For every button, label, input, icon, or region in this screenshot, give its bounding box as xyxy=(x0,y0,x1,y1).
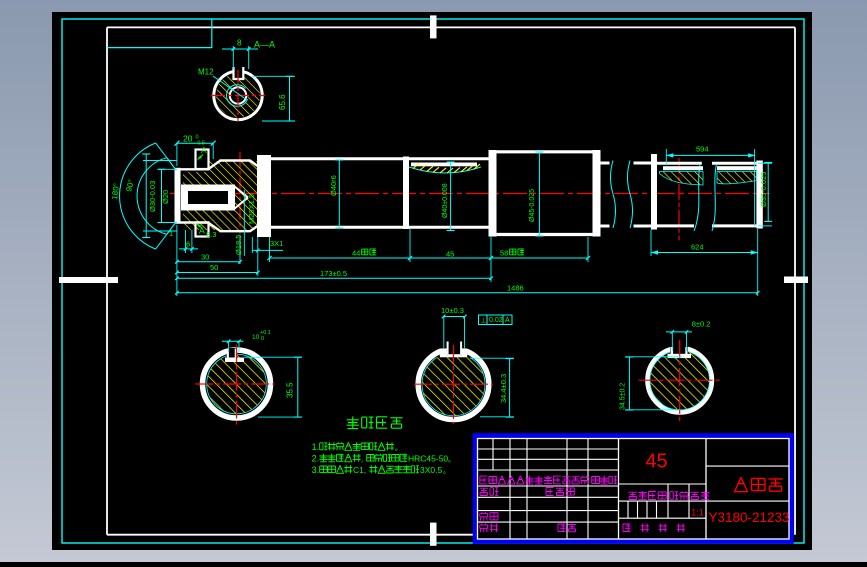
svg-text:A: A xyxy=(199,226,205,236)
svg-text:8: 8 xyxy=(237,39,242,48)
svg-text:1: 1 xyxy=(169,229,173,238)
svg-text:35.5: 35.5 xyxy=(286,382,295,398)
svg-text:0.02: 0.02 xyxy=(489,317,503,324)
svg-text:A—A: A—A xyxy=(254,40,275,50)
svg-text:3X0.5: 3X0.5 xyxy=(420,465,442,475)
svg-text:A: A xyxy=(505,317,510,324)
svg-text:10: 10 xyxy=(252,334,260,341)
svg-text:50: 50 xyxy=(210,263,218,272)
svg-text:34.4±0.3: 34.4±0.3 xyxy=(499,374,508,403)
svg-text:。: 。 xyxy=(395,445,402,452)
svg-text:Y3180-21233: Y3180-21233 xyxy=(708,510,789,525)
svg-text:M12: M12 xyxy=(198,68,214,77)
svg-text:20: 20 xyxy=(183,134,193,144)
svg-text:8.3: 8.3 xyxy=(206,230,216,239)
svg-text:6: 6 xyxy=(186,240,190,249)
svg-text:A: A xyxy=(201,145,207,155)
svg-text:44: 44 xyxy=(352,249,360,258)
svg-text:Ø20: Ø20 xyxy=(161,190,170,204)
svg-text:58: 58 xyxy=(500,249,508,258)
svg-text:C1,: C1, xyxy=(353,465,366,475)
svg-text:HRC45-50: HRC45-50 xyxy=(408,453,448,463)
svg-text:0: 0 xyxy=(261,336,264,342)
svg-text:Ø30-0.03: Ø30-0.03 xyxy=(148,181,157,212)
svg-text:45: 45 xyxy=(446,250,454,259)
svg-text:1.: 1. xyxy=(312,442,320,452)
svg-text:Ø45-0.025: Ø45-0.025 xyxy=(529,189,536,222)
svg-text:3X1: 3X1 xyxy=(270,239,283,248)
svg-text:Ø35-0.025: Ø35-0.025 xyxy=(759,172,768,207)
svg-text:Ø40r6: Ø40r6 xyxy=(329,175,338,196)
svg-text:。: 。 xyxy=(448,457,455,464)
svg-text:M20X1.5: M20X1.5 xyxy=(247,194,256,224)
svg-text:Ø40±0.008: Ø40±0.008 xyxy=(442,183,449,218)
svg-text:,: , xyxy=(361,455,363,464)
svg-text:624: 624 xyxy=(691,243,704,252)
svg-text:45: 45 xyxy=(645,451,667,473)
svg-text:⊥: ⊥ xyxy=(481,318,487,325)
svg-text:10±0.3: 10±0.3 xyxy=(441,306,464,315)
svg-text:173±0.5: 173±0.5 xyxy=(320,269,347,278)
svg-text:8±0.2: 8±0.2 xyxy=(692,320,711,329)
svg-text:3.: 3. xyxy=(312,465,320,475)
svg-text:。: 。 xyxy=(443,468,450,475)
svg-text:30: 30 xyxy=(201,252,209,261)
svg-text:Ø18.5: Ø18.5 xyxy=(234,235,243,255)
svg-text:34.5±0.2: 34.5±0.2 xyxy=(620,383,627,410)
svg-text:2.: 2. xyxy=(312,454,320,464)
svg-text:594: 594 xyxy=(696,145,709,154)
svg-text:1486: 1486 xyxy=(507,283,524,292)
svg-text:65.6: 65.6 xyxy=(278,94,287,110)
svg-text:1:1: 1:1 xyxy=(691,508,704,518)
